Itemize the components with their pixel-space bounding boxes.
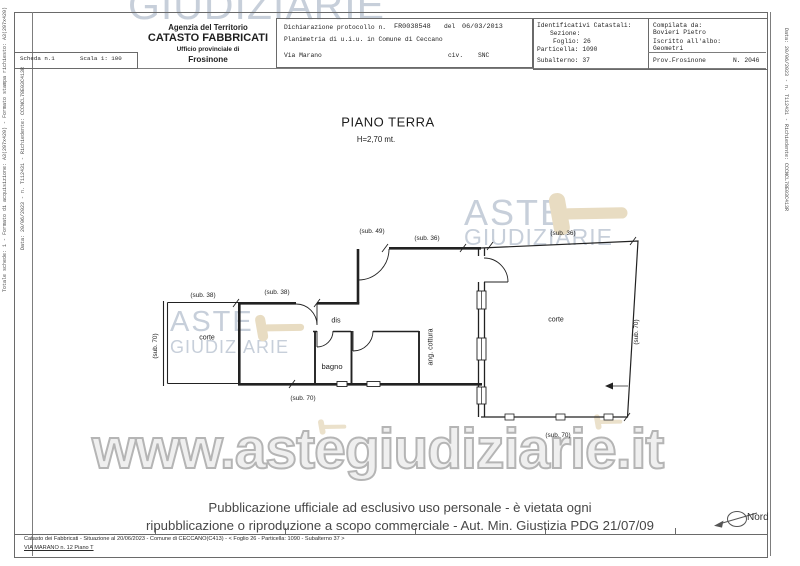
plan-height-label: H=2,70 mt. [357,136,395,144]
sub-label-70-left: (sub. 70) [153,333,159,358]
corte-arrow [605,383,613,390]
room-dis: dis [331,316,340,323]
sub-label-36b: (sub. 36) [550,231,575,237]
strip-line2: VIA MARANO n. 12 Piano T [24,546,94,552]
floor-plan-drawing [0,0,800,566]
strip-line1: Catasto dei Fabbricati - Situazione al 2… [24,537,345,543]
apartment-outer-walls [238,248,482,384]
sub-label-49: (sub. 49) [359,229,384,235]
sub-label-70-right: (sub. 70) [634,319,640,344]
sub-label-38b: (sub. 38) [264,290,289,296]
notice-line2: ripubblicazione o riproduzione a scopo c… [146,519,654,532]
right-wall-openings [477,256,509,404]
sub-label-36a: (sub. 36) [414,236,439,242]
corte-left-walls [164,301,239,386]
plan-title: PIANO TERRA [341,116,434,129]
corte-right-walls [481,241,638,420]
cadastral-document-sheet: GIUDIZIARIE ASTE GIUDIZIARIE ASTE GIUDIZ… [0,0,800,566]
sub-label-38a: (sub. 38) [190,293,215,299]
room-corte-right: corte [548,317,564,324]
side-text-right: Data: 20/06/2023 - n. T112431 - Richiede… [783,28,788,211]
room-corte-left: corte [199,335,215,342]
north-label: Nord [747,513,769,523]
sub-label-70-bottom: (sub. 70) [290,396,315,402]
sub-label-70-corte: (sub. 70) [545,433,570,439]
notice-line1: Pubblicazione ufficiale ad esclusivo uso… [208,501,591,514]
door-symbols [296,249,389,351]
room-bagno: bagno [321,363,342,371]
room-ang-cottura: ang. cottura [428,329,435,366]
side-text-left-inner: Data: 20/06/2023 - n. T112431 - Richiede… [21,67,26,250]
side-text-left-outer: Totale schede: 1 - Formato di acquisizio… [3,7,8,292]
